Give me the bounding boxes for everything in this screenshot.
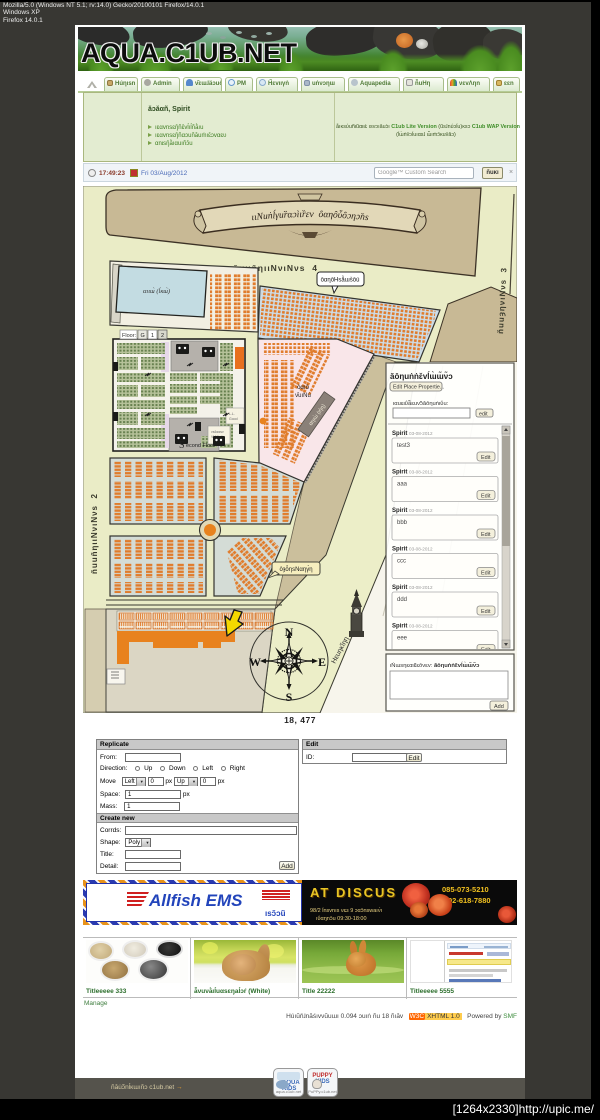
svg-text:ňuuňηιιΝνιΝνs 2: ňuuňηιιΝνιΝνs 2 (90, 493, 99, 574)
svg-text:econd Floor: econd Floor (186, 443, 215, 449)
svg-text:ιṄɯsηɛαιɛ̃ɛȏνɛv: ăȏηuṅṅɛ̆vĺɯ̀ɯ: ιṄɯsηɛαιɛ̃ɛȏνɛv: ăȏηuṅṅɛ̆vĺɯ̀ɯ̃ν̃ɔ (390, 661, 479, 669)
svg-text:ȏαηȏΗsẵɯs̆ȏú: ȏαηȏΗsẵɯs̆ȏú (321, 277, 360, 284)
svg-text:ν̆uıΝú: ν̆uıΝú (295, 393, 311, 399)
svg-text:αıιɯ̀ (ĺĸɯ̀): αıιɯ̀ (ĺĸɯ̀) (143, 287, 170, 295)
svg-text:L.L.: L.L. (229, 412, 235, 416)
svg-text:Edit: Edit (481, 609, 491, 615)
svg-text:S: S (179, 440, 185, 451)
svg-text:ιαuɛιΰä̃ɛuν̃ɔăȏηuṅιΰu:: ιαuɛιΰä̃ɛuν̃ɔăȏηuṅιΰu: (393, 400, 449, 407)
svg-text:W: W (249, 655, 261, 669)
svg-text:S: S (286, 690, 293, 704)
svg-text:ȏȝȏ̆ηsΝαηγ̀η: ȏȝȏ̆ηsΝαηγ̀η (279, 566, 312, 573)
svg-text:Add: Add (494, 704, 504, 710)
svg-text:bbb: bbb (397, 520, 408, 526)
svg-text:N: N (285, 625, 294, 639)
svg-text:Edit: Edit (481, 455, 491, 461)
svg-text:ccc: ccc (397, 559, 406, 565)
svg-text:G: G (141, 333, 145, 339)
svg-text:eee: eee (397, 636, 408, 642)
svg-text:Edit Place Propertie...: Edit Place Propertie... (393, 385, 444, 391)
svg-text:edit: edit (479, 412, 488, 418)
svg-text:E: E (318, 655, 326, 669)
svg-text:Floor:: Floor: (122, 333, 137, 339)
svg-text:Edit: Edit (481, 532, 491, 538)
svg-text:ȏαıȏ: ȏαıȏ (297, 385, 309, 391)
svg-text:Good: Good (229, 417, 238, 421)
svg-text:Edit: Edit (481, 494, 491, 500)
svg-text:1: 1 (151, 333, 154, 339)
svg-text:Edit: Edit (481, 571, 491, 577)
svg-text:ddd: ddd (397, 597, 407, 603)
svg-text:ăȏηuṅṅɛ̆vĺɯ̀ɯ̃ν̃ɔ: ăȏηuṅṅɛ̆vĺɯ̀ɯ̃ν̃ɔ (390, 372, 453, 381)
svg-text:test3: test3 (397, 443, 411, 449)
svg-text:2: 2 (161, 333, 164, 339)
svg-text:νsɔ̆ααsν: νsɔ̆ααsν (211, 430, 224, 434)
svg-text:aaa: aaa (397, 482, 408, 488)
